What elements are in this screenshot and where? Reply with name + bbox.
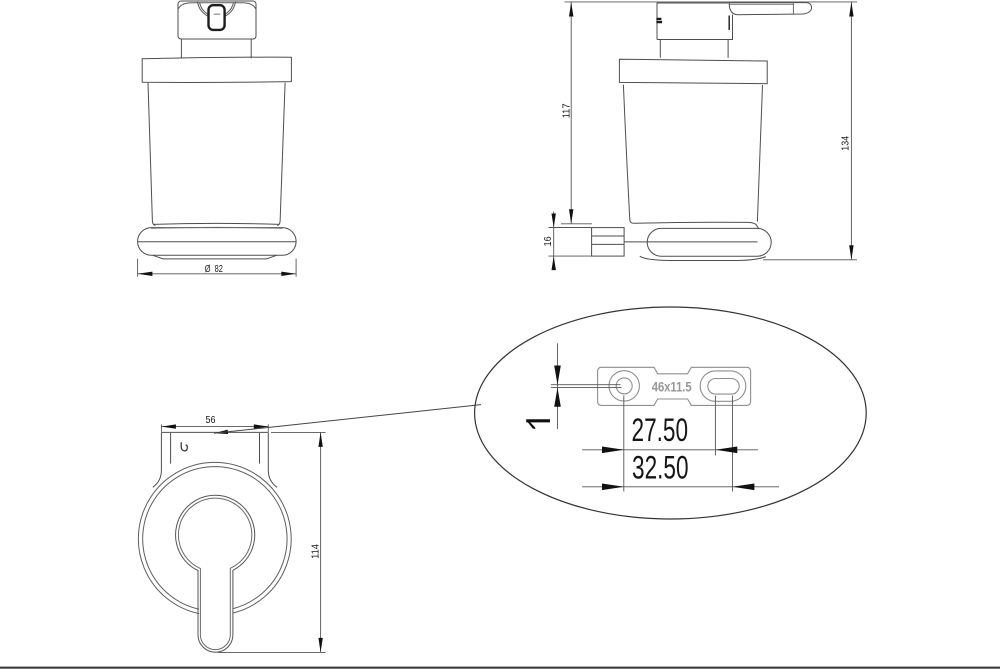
svg-text:134: 134 (841, 136, 852, 151)
svg-text:46x11.5: 46x11.5 (652, 378, 692, 394)
svg-text:27.50: 27.50 (632, 412, 689, 448)
svg-text:56: 56 (206, 415, 216, 426)
svg-text:16: 16 (543, 236, 554, 246)
svg-text:114: 114 (311, 544, 322, 559)
svg-text:117: 117 (561, 103, 572, 118)
svg-text:Ø 82: Ø 82 (205, 264, 223, 275)
svg-text:32.50: 32.50 (632, 450, 689, 486)
